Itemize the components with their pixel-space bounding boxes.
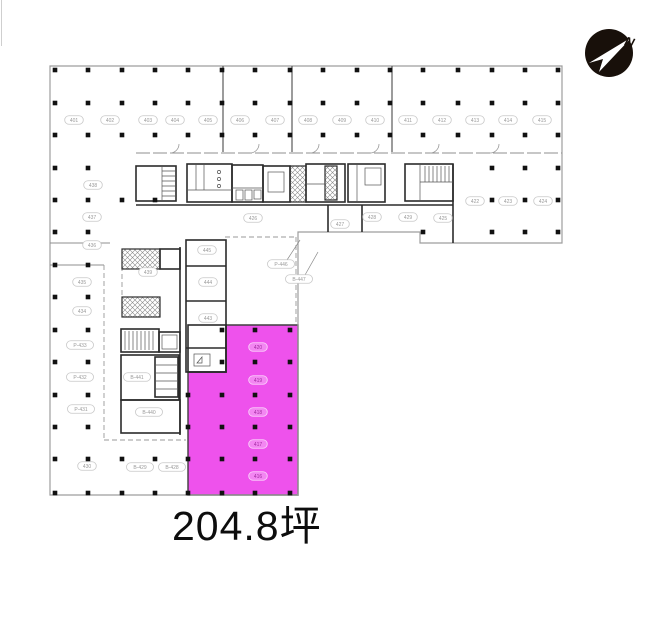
column-marker <box>523 101 528 106</box>
room-label: 428 <box>363 213 382 222</box>
column-marker <box>288 101 293 106</box>
column-marker <box>86 425 91 430</box>
north-compass-icon: N <box>585 29 637 77</box>
room-label: 412 <box>433 116 452 125</box>
column-marker <box>186 68 191 73</box>
room-label: B-429 <box>127 463 154 472</box>
column-marker <box>120 491 125 496</box>
room-label: 404 <box>166 116 185 125</box>
column-marker <box>253 68 258 73</box>
room-label: 406 <box>231 116 250 125</box>
column-marker <box>355 101 360 106</box>
column-marker <box>556 68 561 73</box>
column-marker <box>53 425 58 430</box>
svg-text:P-433: P-433 <box>73 343 87 349</box>
svg-text:410: 410 <box>371 118 380 124</box>
svg-text:P-431: P-431 <box>74 407 88 413</box>
column-marker <box>355 68 360 73</box>
svg-text:438: 438 <box>89 183 98 189</box>
column-marker <box>253 491 258 496</box>
column-marker <box>490 166 495 171</box>
column-marker <box>253 360 258 365</box>
column-marker <box>490 68 495 73</box>
svg-text:417: 417 <box>254 442 263 448</box>
shaft-hatched-areas <box>122 166 337 317</box>
svg-text:428: 428 <box>368 215 377 221</box>
column-marker <box>253 328 258 333</box>
room-label: 439 <box>139 268 158 277</box>
svg-text:416: 416 <box>254 474 263 480</box>
column-marker <box>253 393 258 398</box>
room-label: B-441 <box>124 373 151 382</box>
svg-text:402: 402 <box>106 118 115 124</box>
svg-text:406: 406 <box>236 118 245 124</box>
column-marker <box>288 328 293 333</box>
column-marker <box>186 457 191 462</box>
column-marker <box>120 101 125 106</box>
column-marker <box>86 360 91 365</box>
column-marker <box>86 263 91 268</box>
callout-label: B-447 <box>286 275 313 284</box>
room-label: 444 <box>199 278 218 287</box>
column-marker <box>86 166 91 171</box>
column-marker <box>253 457 258 462</box>
room-label: 424 <box>534 197 553 206</box>
column-marker <box>153 491 158 496</box>
room-label: 429 <box>399 213 418 222</box>
column-marker <box>220 68 225 73</box>
room-label: 435 <box>73 278 92 287</box>
column-marker <box>556 198 561 203</box>
column-marker <box>288 68 293 73</box>
room-label: 423 <box>499 197 518 206</box>
column-marker <box>490 198 495 203</box>
svg-text:430: 430 <box>83 464 92 470</box>
room-labels: 4014024034044054064074084094104114124134… <box>65 116 553 472</box>
callout-labels: P-446B-447 <box>268 240 319 283</box>
column-marker <box>321 68 326 73</box>
svg-text:411: 411 <box>404 118 412 124</box>
room-label: 430 <box>78 462 97 471</box>
svg-text:B-429: B-429 <box>133 465 147 471</box>
svg-text:401: 401 <box>70 118 79 124</box>
column-marker <box>53 491 58 496</box>
svg-text:405: 405 <box>204 118 213 124</box>
column-marker <box>523 133 528 138</box>
column-marker <box>186 491 191 496</box>
svg-text:408: 408 <box>304 118 313 124</box>
svg-text:414: 414 <box>504 118 513 124</box>
svg-text:B-440: B-440 <box>142 410 156 416</box>
column-marker <box>288 360 293 365</box>
svg-text:P-446: P-446 <box>274 262 288 268</box>
room-label: 438 <box>84 181 103 190</box>
svg-text:423: 423 <box>504 199 513 205</box>
column-marker <box>153 68 158 73</box>
room-label: 405 <box>199 116 218 125</box>
column-marker <box>186 393 191 398</box>
svg-text:424: 424 <box>539 199 548 205</box>
column-marker <box>53 68 58 73</box>
column-marker <box>220 328 225 333</box>
column-marker <box>86 393 91 398</box>
room-label: 426 <box>244 214 263 223</box>
column-marker <box>120 457 125 462</box>
column-marker <box>321 133 326 138</box>
floor-plan: 4014024034044054064074084094104114124134… <box>0 0 650 620</box>
column-marker <box>53 166 58 171</box>
unit-room-label: 420 <box>249 343 268 352</box>
column-marker <box>86 101 91 106</box>
room-label: 422 <box>466 197 485 206</box>
column-marker <box>253 101 258 106</box>
unit-room-label: 419 <box>249 376 268 385</box>
column-marker <box>53 457 58 462</box>
column-marker <box>253 425 258 430</box>
column-marker <box>86 133 91 138</box>
column-marker <box>288 133 293 138</box>
svg-text:B-441: B-441 <box>130 375 144 381</box>
svg-text:439: 439 <box>144 270 153 276</box>
room-label: P-432 <box>67 373 94 382</box>
highlighted-unit-area[interactable] <box>188 325 298 495</box>
callout-leader-line <box>305 252 318 275</box>
column-marker <box>153 457 158 462</box>
column-marker <box>523 230 528 235</box>
svg-text:419: 419 <box>254 378 263 384</box>
column-marker <box>288 425 293 430</box>
column-marker <box>153 198 158 203</box>
room-label: 445 <box>198 246 217 255</box>
column-marker <box>53 360 58 365</box>
room-label: B-440 <box>136 408 163 417</box>
svg-text:409: 409 <box>338 118 347 124</box>
column-marker <box>53 328 58 333</box>
column-marker <box>490 101 495 106</box>
column-marker <box>220 457 225 462</box>
column-marker <box>523 68 528 73</box>
svg-text:422: 422 <box>471 199 480 205</box>
room-label: 401 <box>65 116 84 125</box>
column-marker <box>186 425 191 430</box>
column-marker <box>220 393 225 398</box>
column-marker <box>86 68 91 73</box>
column-marker <box>355 133 360 138</box>
column-marker <box>421 133 426 138</box>
column-marker <box>153 101 158 106</box>
column-marker <box>456 133 461 138</box>
room-label: 443 <box>199 314 218 323</box>
column-marker <box>220 101 225 106</box>
column-marker <box>186 133 191 138</box>
column-marker <box>421 101 426 106</box>
svg-text:407: 407 <box>271 118 280 124</box>
column-marker <box>288 393 293 398</box>
column-marker <box>86 198 91 203</box>
room-label: 414 <box>499 116 518 125</box>
column-marker <box>490 230 495 235</box>
room-label: 413 <box>466 116 485 125</box>
column-marker <box>456 68 461 73</box>
room-label: P-433 <box>67 341 94 350</box>
room-label: 436 <box>83 241 102 250</box>
column-marker <box>456 101 461 106</box>
svg-text:434: 434 <box>78 309 87 315</box>
svg-text:427: 427 <box>336 222 345 228</box>
callout-label: P-446 <box>268 260 295 269</box>
column-marker <box>120 133 125 138</box>
column-marker <box>220 425 225 430</box>
column-marker <box>120 198 125 203</box>
room-label: 415 <box>533 116 552 125</box>
column-marker <box>53 230 58 235</box>
column-marker <box>53 198 58 203</box>
svg-text:412: 412 <box>438 118 447 124</box>
svg-text:413: 413 <box>471 118 480 124</box>
column-marker <box>186 101 191 106</box>
room-label: 425 <box>434 214 453 223</box>
column-marker <box>53 101 58 106</box>
room-label: 427 <box>331 220 350 229</box>
svg-text:435: 435 <box>78 280 87 286</box>
column-marker <box>490 133 495 138</box>
room-label: 411 <box>399 116 418 125</box>
floor-plan-image: 4014024034044054064074084094104114124134… <box>0 0 650 620</box>
room-label: 434 <box>73 307 92 316</box>
unit-room-label: 417 <box>249 440 268 449</box>
column-marker <box>253 133 258 138</box>
svg-text:B-447: B-447 <box>292 277 306 283</box>
room-label: B-428 <box>159 463 186 472</box>
column-marker <box>556 133 561 138</box>
svg-text:418: 418 <box>254 410 263 416</box>
column-marker <box>288 457 293 462</box>
column-marker <box>153 133 158 138</box>
column-marker <box>388 68 393 73</box>
svg-text:436: 436 <box>88 243 97 249</box>
svg-text:404: 404 <box>171 118 180 124</box>
svg-text:445: 445 <box>203 248 212 254</box>
svg-text:403: 403 <box>144 118 153 124</box>
svg-text:415: 415 <box>538 118 547 124</box>
column-marker <box>421 68 426 73</box>
column-marker <box>53 133 58 138</box>
column-marker <box>86 295 91 300</box>
column-marker <box>53 263 58 268</box>
room-label: 410 <box>366 116 385 125</box>
room-label: 403 <box>139 116 158 125</box>
column-marker <box>86 328 91 333</box>
svg-text:443: 443 <box>204 316 213 322</box>
room-label: 409 <box>333 116 352 125</box>
unit-room-label: 416 <box>249 472 268 481</box>
svg-text:437: 437 <box>88 215 97 221</box>
room-label: P-431 <box>68 405 95 414</box>
partition-walls <box>223 66 392 152</box>
room-label: 407 <box>266 116 285 125</box>
column-marker <box>120 68 125 73</box>
svg-text:B-428: B-428 <box>165 465 179 471</box>
area-size-label: 204.8坪 <box>172 503 322 549</box>
room-label: 408 <box>299 116 318 125</box>
svg-text:444: 444 <box>204 280 213 286</box>
unit-room-label: 418 <box>249 408 268 417</box>
column-marker <box>53 295 58 300</box>
svg-text:425: 425 <box>439 216 448 222</box>
door-swing-arcs <box>170 144 499 153</box>
svg-text:420: 420 <box>254 345 263 351</box>
svg-text:426: 426 <box>249 216 258 222</box>
column-marker <box>388 133 393 138</box>
column-marker <box>523 198 528 203</box>
column-marker <box>220 360 225 365</box>
column-marker <box>220 133 225 138</box>
svg-text:P-432: P-432 <box>73 375 87 381</box>
column-marker <box>86 457 91 462</box>
svg-text:429: 429 <box>404 215 413 221</box>
column-marker <box>321 101 326 106</box>
column-marker <box>556 166 561 171</box>
room-label: 402 <box>101 116 120 125</box>
column-marker <box>556 230 561 235</box>
column-marker <box>523 166 528 171</box>
column-marker <box>86 230 91 235</box>
column-marker <box>86 491 91 496</box>
column-marker <box>53 393 58 398</box>
column-marker <box>388 101 393 106</box>
column-marker <box>288 491 293 496</box>
column-marker <box>220 491 225 496</box>
column-marker <box>556 101 561 106</box>
column-marker <box>421 230 426 235</box>
room-label: 437 <box>83 213 102 222</box>
